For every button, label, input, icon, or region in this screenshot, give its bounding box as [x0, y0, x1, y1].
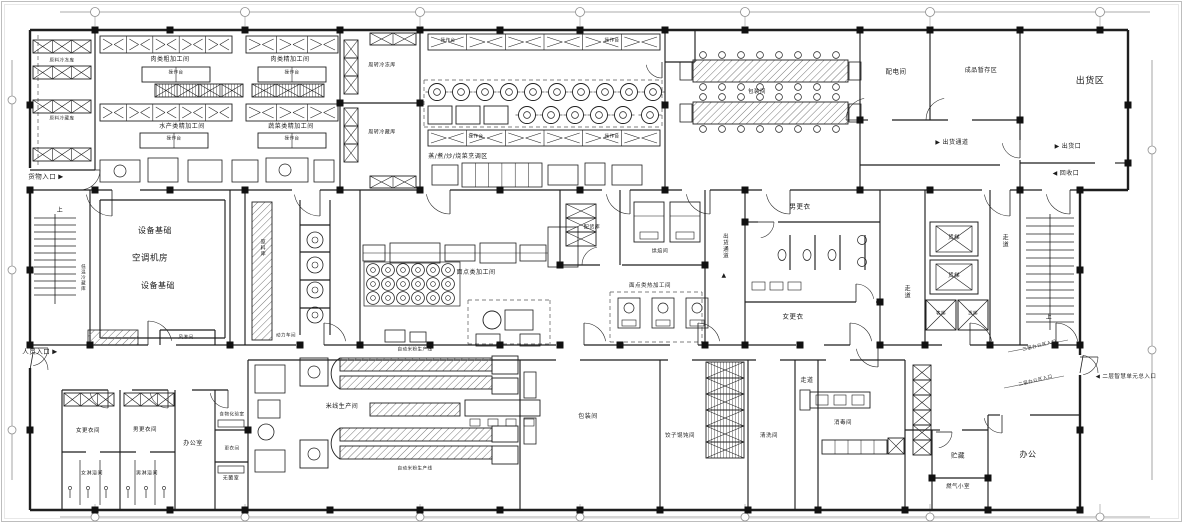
- room-women-shower-text: 女淋浴间: [81, 471, 103, 476]
- worktable-3: 操作台: [167, 138, 182, 143]
- room-meat-fine: 肉类精加工间: [270, 57, 309, 63]
- corridor-right: 走道: [1001, 234, 1007, 248]
- room-men-locker-text: 男更衣间: [133, 428, 157, 434]
- worktable-6-text: 操作台: [605, 40, 620, 45]
- room-gas-text: 燃气小室: [946, 485, 970, 491]
- annotation-2f-entry-1: 二层办公区入口: [1022, 340, 1057, 353]
- room-locker-small-text: 更衣间: [225, 448, 240, 453]
- corridor-elevator: 走道: [903, 285, 909, 299]
- stair-up-left: 上: [57, 208, 64, 214]
- room-lowtemp-cold-store-text: 低温冷藏库: [80, 264, 85, 292]
- room-baking-text: 烘焙间: [652, 249, 669, 254]
- room-women-shower: 女淋浴间: [81, 471, 103, 476]
- shipping-exit-text: 出货口: [1062, 144, 1082, 150]
- room-meat-fine-text: 肉类精加工间: [270, 57, 309, 63]
- worktable-5: 操作台: [441, 40, 456, 45]
- corridor-bottom-text: 走道: [800, 378, 813, 384]
- elevator-freight-2-text: 货梯: [948, 274, 960, 280]
- line-rice-noodle-2-text: 自动米粉生产线: [398, 468, 433, 473]
- recycle-entrance: ◀回收口: [1053, 171, 1080, 177]
- room-men-changing-text: 男更衣: [790, 204, 811, 211]
- equipment-base-2: 设备基础: [141, 282, 175, 290]
- worktable-4: 操作台: [285, 138, 300, 143]
- shipping-corridor-arrow-icon: ▶: [935, 140, 940, 146]
- room-dumpling-text: 饺子馄饨间: [665, 434, 695, 440]
- room-raw-cold-store-text: 原料冷藏库: [50, 118, 75, 123]
- worktable-3-text: 操作台: [167, 138, 182, 143]
- entrance-2f: ◀二层智慧单元总入口: [1096, 375, 1157, 381]
- label-raw-material-store: 原料库: [259, 239, 264, 257]
- room-air-shower: 风淋间: [179, 337, 194, 342]
- room-baking: 烘焙间: [652, 249, 669, 254]
- worktable-8-text: 操作台: [605, 136, 620, 141]
- shipping-exit: ▶出货口: [1055, 144, 1082, 150]
- room-men-locker: 男更衣间: [133, 428, 157, 434]
- corridor-bottom: 走道: [800, 378, 813, 384]
- room-washing-text: 清洗间: [760, 434, 778, 440]
- corridor-shipping-top-text: 出货通道: [943, 140, 969, 146]
- shipping-corridor-up-arrow-icon: ▲: [721, 273, 726, 279]
- room-veg-fine-text: 蔬菜类精加工间: [268, 124, 314, 130]
- room-pastry-text: 面点类加工间: [456, 270, 495, 276]
- equipment-base-2-text: 设备基础: [141, 282, 175, 290]
- room-meat-rough: 肉类粗加工间: [150, 57, 189, 63]
- personnel-entrance-arrow-icon: ▶: [52, 349, 58, 356]
- zone-shipping: 出货区: [1076, 77, 1105, 86]
- personnel-entrance: 人员入口▶: [22, 349, 58, 356]
- room-dumpling: 饺子馄饨间: [665, 434, 695, 440]
- room-packing-top-text: 包装间: [748, 90, 766, 96]
- room-power-text: 动力车间: [276, 335, 296, 340]
- corridor-shipping-mid-text: 出货通道: [721, 233, 727, 259]
- room-raw-freezer-text: 原料冷冻库: [50, 60, 75, 65]
- room-air-shower-text: 风淋间: [179, 337, 194, 342]
- room-seafood-fine: 水产类精加工间: [159, 124, 205, 130]
- room-storage: 贮藏: [951, 453, 965, 460]
- room-pastry: 面点类加工间: [456, 270, 495, 276]
- room-turnover-cold-text: 周转冷藏库: [368, 130, 396, 135]
- room-labels-layer: 原料冷冻库原料冷藏库货物入口▶上低温冷藏库人员入口▶设备基础空调机房设备基础风淋…: [0, 0, 1183, 523]
- room-raw-cold-store: 原料冷藏库: [50, 118, 75, 123]
- line-rice-noodle-1: 自动米粉生产线: [398, 349, 433, 354]
- room-disinfection: 消毒间: [834, 421, 852, 427]
- room-washing: 清洗间: [760, 434, 778, 440]
- room-meat-rough-text: 肉类粗加工间: [150, 57, 189, 63]
- elevator-freight-1: 货梯: [948, 236, 960, 242]
- worktable-8: 操作台: [605, 136, 620, 141]
- elevator-freight-1-text: 货梯: [948, 236, 960, 242]
- recycle-arrow-icon: ◀: [1053, 171, 1058, 177]
- room-food-lab: 食物化验室: [220, 414, 245, 419]
- room-packing-top: 包装间: [748, 90, 766, 96]
- entrance-2f-text: 二层智慧单元总入口: [1102, 375, 1156, 381]
- shipping-corridor-up-arrow-icon-glyph: ▲: [721, 273, 726, 279]
- floorplan-page: 原料冷冻库原料冷藏库货物入口▶上低温冷藏库人员入口▶设备基础空调机房设备基础风淋…: [0, 0, 1183, 523]
- elevator-freight-3: 货梯: [968, 313, 978, 318]
- room-locker-small: 更衣间: [225, 448, 240, 453]
- room-turnover-freezer-text: 周转冷冻库: [368, 63, 396, 68]
- worktable-5-text: 操作台: [441, 40, 456, 45]
- worktable-7-text: 操作台: [469, 136, 484, 141]
- room-turnover-freezer: 周转冷冻库: [368, 63, 396, 68]
- goods-entrance: 货物入口▶: [28, 174, 64, 181]
- annotation-2f-entry-2-text: 二层办公区入口: [1018, 375, 1053, 388]
- corridor-right-text: 走道: [1001, 234, 1007, 248]
- corridor-elevator-text: 走道: [903, 285, 909, 299]
- worktable-7: 操作台: [469, 136, 484, 141]
- room-women-locker: 女更衣间: [76, 429, 100, 435]
- room-sterile-text: 无菌室: [223, 476, 240, 481]
- room-men-changing: 男更衣: [790, 204, 811, 211]
- room-packing-bottom-text: 包装间: [578, 414, 598, 420]
- room-hvac-text: 空调机房: [132, 255, 168, 264]
- room-veg-fine: 蔬菜类精加工间: [268, 124, 314, 130]
- line-rice-noodle-2: 自动米粉生产线: [398, 468, 433, 473]
- worktable-6: 操作台: [605, 40, 620, 45]
- room-office-text: 办公: [1020, 451, 1037, 459]
- worktable-2: 操作台: [285, 72, 300, 77]
- room-gas: 燃气小室: [946, 485, 970, 491]
- zone-cooking-text: 蒸/煮/炒/烧菜烹调区: [428, 154, 488, 160]
- room-disinfection-text: 消毒间: [834, 421, 852, 427]
- elevator-passenger-text: 客梯: [936, 313, 946, 318]
- stair-up-left-text: 上: [57, 208, 64, 214]
- room-storage-text: 贮藏: [951, 453, 965, 460]
- stair-up-right-text: 上: [1046, 315, 1053, 321]
- room-women-changing-text: 女更衣: [783, 314, 804, 321]
- corridor-shipping-top: ▶出货通道: [935, 140, 968, 146]
- room-office-small: 办公室: [183, 441, 203, 447]
- room-rice-noodle-text: 米线生产间: [326, 404, 359, 410]
- annotation-2f-entry-2: 二层办公区入口: [1018, 375, 1053, 388]
- room-hvac: 空调机房: [132, 255, 168, 264]
- worktable-1-text: 操作台: [169, 72, 184, 77]
- room-raw-freezer: 原料冷冻库: [50, 60, 75, 65]
- room-seafood-fine-text: 水产类精加工间: [159, 124, 205, 130]
- room-office: 办公: [1020, 451, 1037, 459]
- goods-entrance-arrow-icon: ▶: [58, 174, 64, 181]
- elevator-freight-2: 货梯: [948, 274, 960, 280]
- elevator-freight-3-text: 货梯: [968, 313, 978, 318]
- personnel-entrance-text: 人员入口: [22, 349, 50, 356]
- room-distribution-store: 配货库: [584, 225, 601, 230]
- room-women-changing: 女更衣: [783, 314, 804, 321]
- room-lowtemp-cold-store: 低温冷藏库: [80, 264, 85, 292]
- line-rice-noodle-1-text: 自动米粉生产线: [398, 349, 433, 354]
- room-rice-noodle: 米线生产间: [326, 404, 359, 410]
- entrance-2f-arrow-icon: ◀: [1096, 375, 1101, 381]
- room-food-lab-text: 食物化验室: [220, 414, 245, 419]
- room-power: 动力车间: [276, 335, 296, 340]
- annotation-2f-entry-1-text: 二层办公区入口: [1022, 340, 1057, 353]
- goods-entrance-text: 货物入口: [28, 174, 56, 181]
- room-men-shower-text: 男淋浴间: [136, 471, 158, 476]
- room-women-locker-text: 女更衣间: [76, 429, 100, 435]
- room-packing-bottom: 包装间: [578, 414, 598, 420]
- corridor-shipping-mid: 出货通道: [721, 233, 727, 259]
- zone-cooking: 蒸/煮/炒/烧菜烹调区: [428, 154, 488, 160]
- worktable-4-text: 操作台: [285, 138, 300, 143]
- stair-up-right: 上: [1046, 315, 1053, 321]
- room-turnover-cold: 周转冷藏库: [368, 130, 396, 135]
- room-pastry-hot-text: 面点类热加工间: [629, 284, 671, 290]
- recycle-entrance-text: 回收口: [1060, 171, 1080, 177]
- room-office-small-text: 办公室: [183, 441, 203, 447]
- room-pastry-hot: 面点类热加工间: [629, 284, 671, 290]
- room-finished-storage-text: 成品暂存区: [965, 68, 998, 74]
- room-finished-storage: 成品暂存区: [965, 68, 998, 74]
- equipment-base-1-text: 设备基础: [138, 227, 172, 235]
- label-raw-material-store-text: 原料库: [259, 239, 264, 257]
- room-distribution-store-text: 配货库: [584, 225, 601, 230]
- worktable-2-text: 操作台: [285, 72, 300, 77]
- room-sterile: 无菌室: [223, 476, 240, 481]
- equipment-base-1: 设备基础: [138, 227, 172, 235]
- room-men-shower: 男淋浴间: [136, 471, 158, 476]
- elevator-passenger: 客梯: [936, 313, 946, 318]
- room-electrical-text: 配电间: [886, 69, 907, 76]
- room-electrical: 配电间: [886, 69, 907, 76]
- zone-shipping-text: 出货区: [1076, 77, 1105, 86]
- worktable-1: 操作台: [169, 72, 184, 77]
- shipping-exit-arrow-icon: ▶: [1055, 144, 1060, 150]
